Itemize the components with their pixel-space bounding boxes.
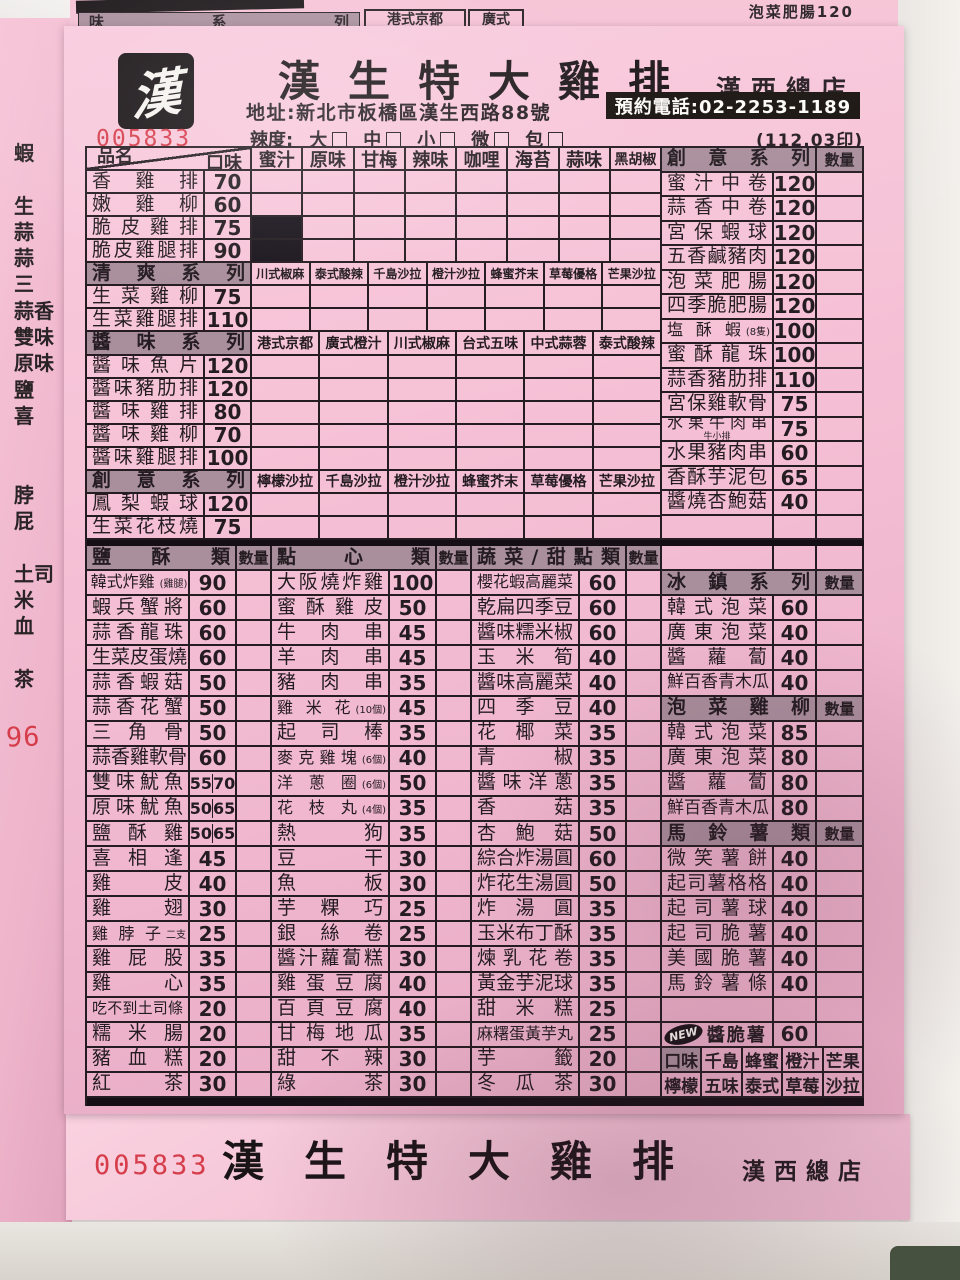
table-row: 櫻花蝦高麗菜60	[472, 571, 662, 596]
item-name-cell: 芋籤	[472, 1048, 580, 1073]
flavor-select-cell[interactable]	[252, 356, 320, 379]
flavor-select-cell[interactable]	[508, 240, 559, 263]
item-price-cell: 50	[580, 822, 627, 847]
item-name: 鹽酥雞	[87, 824, 188, 844]
quantity-input-cell[interactable]	[237, 621, 272, 646]
flavor-select-cell[interactable]	[252, 425, 320, 448]
spice-checkbox[interactable]	[386, 132, 401, 147]
quantity-input-cell[interactable]	[237, 772, 272, 797]
item-price-cell: 60	[580, 596, 627, 621]
flavor-select-cell[interactable]	[428, 309, 487, 332]
quantity-input-cell[interactable]	[817, 671, 864, 696]
quantity-input-cell[interactable]	[237, 872, 272, 897]
flavor-select-cell[interactable]	[560, 171, 611, 194]
quantity-input-cell[interactable]	[237, 646, 272, 671]
item-name-cell: 牛肉串	[272, 621, 390, 646]
quantity-input-cell[interactable]	[817, 271, 864, 296]
quantity-input-cell[interactable]	[627, 922, 662, 947]
quantity-input-cell[interactable]	[437, 722, 472, 747]
item-name: 玉米筍	[472, 648, 578, 668]
quantity-input-cell[interactable]	[237, 1023, 272, 1048]
flavor-select-cell[interactable]	[457, 379, 525, 402]
flavor-select-cell[interactable]	[611, 171, 662, 194]
item-price-cell: 60	[774, 442, 817, 467]
flavor-select-cell[interactable]	[525, 425, 593, 448]
flavor-select-cell[interactable]	[457, 194, 508, 217]
table-row: 水果牛肉串牛小排75	[662, 418, 864, 443]
flavor-select-cell[interactable]	[252, 517, 320, 540]
item-name-cell: 香菇	[472, 797, 580, 822]
flavor-select-cell[interactable]	[457, 217, 508, 240]
item-name: 醬味豬肋排	[87, 379, 203, 399]
quantity-input-cell[interactable]	[237, 822, 272, 847]
item-price-cell: 40	[774, 621, 817, 646]
flavor-select-cell[interactable]	[320, 448, 388, 471]
table-row: 醬燒杏鮑菇40	[662, 491, 864, 516]
quantity-input-cell[interactable]	[817, 621, 864, 646]
section-header: 鹽酥類	[87, 546, 237, 571]
item-price-cell: 80	[205, 402, 252, 425]
flavor-select-cell[interactable]	[525, 517, 593, 540]
flavor-select-cell[interactable]	[320, 517, 388, 540]
table-row: 冬瓜茶30	[472, 1073, 662, 1098]
item-price-cell: 35	[390, 1023, 437, 1048]
section-header: 蔬菜/甜點類	[472, 546, 627, 571]
flavor-select-cell[interactable]	[611, 194, 662, 217]
quantity-input-cell[interactable]	[237, 596, 272, 621]
table-row: 馬鈴薯類數量	[662, 822, 864, 847]
item-price-cell: 40	[390, 973, 437, 998]
flavor-select-cell[interactable]	[457, 448, 525, 471]
item-name: 羊肉串	[272, 648, 388, 668]
item-price-cell: 30	[390, 1048, 437, 1073]
quantity-input-cell[interactable]	[437, 671, 472, 696]
quantity-input-cell[interactable]	[817, 973, 864, 998]
table-row: 鹽酥雞5065	[87, 822, 272, 847]
flavor-select-cell[interactable]	[486, 286, 545, 309]
flavor-option: 檸檬	[662, 1073, 702, 1098]
item-name-cell: 雞心	[87, 973, 190, 998]
item-name-cell: 蒜香花蟹	[87, 697, 190, 722]
quantity-input-cell[interactable]	[817, 747, 864, 772]
flavor-select-cell[interactable]	[320, 425, 388, 448]
flavor-select-cell[interactable]	[560, 194, 611, 217]
quantity-input-cell[interactable]	[437, 1073, 472, 1098]
empty-cell	[817, 998, 864, 1023]
item-name: 雞米花	[272, 700, 355, 717]
quantity-input-cell[interactable]	[627, 596, 662, 621]
stacked-sheet-text-column: 蝦生蒜蒜三蒜香雙味原味鹽喜脖屁土司米血茶	[14, 140, 66, 692]
item-price-cell: 120	[205, 356, 252, 379]
item-name: 花枝丸	[272, 800, 362, 817]
quantity-input-cell[interactable]	[627, 847, 662, 872]
flavor-select-cell[interactable]	[545, 286, 604, 309]
item-name-cell: 蜜酥雞皮	[272, 596, 390, 621]
flavor-select-cell[interactable]	[457, 402, 525, 425]
item-name-with-sub: 水果牛肉串牛小排	[662, 418, 772, 443]
flavor-select-cell[interactable]	[252, 194, 303, 217]
table-row: 黃金芋泥球35	[472, 973, 662, 998]
quantity-input-cell[interactable]	[817, 393, 864, 418]
quantity-input-cell[interactable]	[817, 646, 864, 671]
item-name: 脆皮雞腿排	[87, 241, 203, 261]
flavor-select-cell[interactable]	[594, 448, 662, 471]
flavor-select-cell[interactable]	[603, 286, 662, 309]
quantity-input-cell[interactable]	[437, 1023, 472, 1048]
flavor-column-header: 廣式橙汁	[320, 332, 388, 355]
quantity-input-cell[interactable]	[627, 722, 662, 747]
item-name-cell: 雞翅	[87, 897, 190, 922]
quantity-input-cell[interactable]	[437, 571, 472, 596]
quantity-input-cell[interactable]	[437, 998, 472, 1023]
section-title: 清爽系列	[87, 264, 250, 284]
item-name-cell: 綜合炸湯圓	[472, 847, 580, 872]
item-name: 煉乳花卷	[472, 949, 578, 969]
quantity-input-cell[interactable]	[437, 797, 472, 822]
item-price-small: 50	[190, 824, 212, 843]
flavor-select-cell[interactable]	[303, 217, 354, 240]
quantity-input-cell[interactable]	[627, 797, 662, 822]
flavor-select-cell[interactable]	[406, 217, 457, 240]
flavor-select-cell[interactable]	[406, 171, 457, 194]
quantity-input-cell[interactable]	[437, 596, 472, 621]
quantity-input-cell[interactable]	[437, 621, 472, 646]
quantity-input-cell[interactable]	[627, 571, 662, 596]
flavor-select-cell[interactable]	[252, 309, 311, 332]
flavor-select-cell[interactable]	[508, 217, 559, 240]
quantity-input-cell[interactable]	[437, 772, 472, 797]
creative-series-panel: 創意系列數量蜜汁中卷120蒜香中卷120宮保蝦球120五香鹹豬肉120泡菜肥腸1…	[662, 148, 864, 540]
flavor-select-cell[interactable]	[545, 309, 604, 332]
item-name: 甜不辣	[272, 1049, 388, 1069]
quantity-column-header: 數量	[817, 148, 864, 173]
quantity-input-cell[interactable]	[437, 747, 472, 772]
flavor-select-cell[interactable]	[320, 379, 388, 402]
item-name-cell: 吃不到土司條	[87, 998, 190, 1023]
flavor-select-cell[interactable]	[311, 286, 370, 309]
quantity-input-cell[interactable]	[627, 822, 662, 847]
item-name-cell: 鹽酥雞	[87, 822, 190, 847]
flavor-select-cell[interactable]	[303, 240, 354, 263]
item-name-cell: 韓式泡菜	[662, 722, 774, 747]
flavor-select-cell[interactable]	[369, 286, 428, 309]
quantity-input-cell[interactable]	[237, 922, 272, 947]
quantity-column-header: 數量	[437, 546, 472, 571]
quantity-input-cell[interactable]	[237, 973, 272, 998]
flavor-select-cell[interactable]	[252, 286, 311, 309]
quantity-input-cell[interactable]	[817, 246, 864, 271]
quantity-input-cell[interactable]	[627, 621, 662, 646]
flavor-select-cell[interactable]	[252, 494, 320, 517]
item-price-cell: 35	[190, 973, 237, 998]
item-name-cell: 生菜花枝燒	[87, 517, 205, 540]
quantity-input-cell[interactable]	[627, 998, 662, 1023]
flavor-select-cell[interactable]	[311, 309, 370, 332]
flavor-select-cell[interactable]	[508, 194, 559, 217]
flavor-select-cell[interactable]	[406, 240, 457, 263]
stacked-sheet-text-fragment: 原味	[14, 350, 66, 376]
quantity-input-cell[interactable]	[437, 646, 472, 671]
quantity-input-cell[interactable]	[817, 897, 864, 922]
flavor-column-header: 芒果沙拉	[603, 263, 662, 286]
spice-checkbox[interactable]	[440, 132, 455, 147]
table-row: 雞米花(10個)45	[272, 697, 472, 722]
table-row: 醬味雞排80	[87, 402, 662, 425]
flavor-option: 沙拉	[824, 1073, 864, 1098]
quantity-input-cell[interactable]	[817, 596, 864, 621]
table-row: 玉米筍40	[472, 646, 662, 671]
flavor-select-cell[interactable]	[525, 402, 593, 425]
flavor-select-cell[interactable]	[389, 425, 457, 448]
item-name: 醬味雞柳	[87, 425, 203, 445]
quantity-input-cell[interactable]	[817, 491, 864, 516]
item-name-cell: 醬味雞柳	[87, 425, 205, 448]
spice-checkbox[interactable]	[494, 132, 509, 147]
flavor-select-cell[interactable]	[369, 309, 428, 332]
quantity-input-cell[interactable]	[817, 847, 864, 872]
flavor-select-cell[interactable]	[320, 356, 388, 379]
flavor-select-cell[interactable]	[457, 494, 525, 517]
item-name-cell: 炸湯圓	[472, 897, 580, 922]
quantity-input-cell[interactable]	[817, 772, 864, 797]
item-name-cell: 韓式泡菜	[662, 596, 774, 621]
quantity-input-cell[interactable]	[237, 998, 272, 1023]
item-name: 雞脖子	[87, 926, 166, 943]
flavor-select-cell[interactable]	[525, 448, 593, 471]
quantity-input-cell[interactable]	[817, 369, 864, 394]
quantity-input-cell[interactable]	[437, 847, 472, 872]
quantity-input-cell[interactable]	[817, 442, 864, 467]
flavor-select-cell[interactable]	[457, 356, 525, 379]
flavor-column-header: 千島沙拉	[320, 471, 388, 494]
table-row: 清爽系列川式椒麻泰式酸辣千島沙拉橙汁沙拉蜂蜜芥末草莓優格芒果沙拉	[87, 263, 662, 286]
item-name: 醬味糯米椒	[472, 623, 578, 643]
flavor-select-cell[interactable]	[303, 194, 354, 217]
quantity-input-cell[interactable]	[627, 747, 662, 772]
item-price-cell: 35	[580, 947, 627, 972]
flavor-select-cell[interactable]	[389, 356, 457, 379]
quantity-input-cell[interactable]	[237, 697, 272, 722]
item-note: (雞腿)	[160, 575, 188, 590]
quantity-input-cell[interactable]	[627, 772, 662, 797]
quantity-input-cell[interactable]	[627, 671, 662, 696]
quantity-input-cell[interactable]	[237, 671, 272, 696]
quantity-input-cell[interactable]	[237, 747, 272, 772]
flavor-select-cell[interactable]	[560, 240, 611, 263]
quantity-input-cell[interactable]	[627, 897, 662, 922]
flavor-select-cell[interactable]	[303, 171, 354, 194]
quantity-input-cell[interactable]	[437, 872, 472, 897]
name-flavor-corner-cell: 口味品名	[87, 148, 252, 171]
flavor-select-cell[interactable]	[508, 171, 559, 194]
flavor-select-cell[interactable]	[611, 217, 662, 240]
flavor-select-cell[interactable]	[594, 425, 662, 448]
item-note: (4個)	[362, 801, 386, 816]
quantity-input-cell[interactable]	[627, 1073, 662, 1098]
table-row: 煉乳花卷35	[472, 947, 662, 972]
stacked-sheet-text-fragment: 雙味	[14, 324, 66, 350]
spice-checkbox[interactable]	[332, 132, 347, 147]
quantity-input-cell[interactable]	[437, 822, 472, 847]
flavor-select-cell[interactable]	[457, 425, 525, 448]
item-name: 醬蘿蔔	[662, 773, 772, 793]
flavor-select-cell[interactable]	[457, 517, 525, 540]
item-price-cell: 60	[580, 621, 627, 646]
stacked-sheet-serial-fragment: 96	[5, 721, 41, 753]
item-name: 百頁豆腐	[272, 999, 388, 1019]
quantity-input-cell[interactable]	[817, 1023, 864, 1048]
flavor-select-cell[interactable]	[603, 309, 662, 332]
item-name: 雙味魷魚	[87, 773, 188, 793]
quantity-input-cell[interactable]	[817, 344, 864, 369]
quantity-input-cell[interactable]	[817, 173, 864, 198]
flavor-select-cell[interactable]	[389, 517, 457, 540]
flavor-select-cell[interactable]	[486, 309, 545, 332]
table-row: 雞屁股35	[87, 947, 272, 972]
table-row: 馬鈴薯條40	[662, 973, 864, 998]
quantity-input-cell[interactable]	[237, 797, 272, 822]
item-name: 黃金芋泥球	[472, 974, 578, 994]
flavor-select-cell[interactable]	[594, 379, 662, 402]
quantity-input-cell[interactable]	[437, 1048, 472, 1073]
flavor-select-cell[interactable]	[320, 494, 388, 517]
table-row: 蒜香蝦菇50	[87, 671, 272, 696]
footer-serial-number: 005833	[94, 1150, 210, 1181]
quantity-input-cell[interactable]	[817, 922, 864, 947]
item-price-cell: 30	[190, 1073, 237, 1098]
quantity-input-cell[interactable]	[817, 797, 864, 822]
quantity-input-cell[interactable]	[437, 947, 472, 972]
quantity-input-cell[interactable]	[627, 872, 662, 897]
flavor-select-cell[interactable]	[457, 171, 508, 194]
quantity-input-cell[interactable]	[817, 947, 864, 972]
item-note: (6個)	[362, 776, 386, 791]
item-price-cell: 20	[190, 1048, 237, 1073]
flavor-select-cell[interactable]	[355, 240, 406, 263]
quantity-input-cell[interactable]	[437, 973, 472, 998]
quantity-input-cell[interactable]	[237, 1048, 272, 1073]
flavor-column-header: 泰式酸辣	[311, 263, 370, 286]
quantity-input-cell[interactable]	[437, 697, 472, 722]
flavor-select-cell[interactable]	[560, 217, 611, 240]
quantity-input-cell[interactable]	[817, 222, 864, 247]
quantity-input-cell[interactable]	[437, 897, 472, 922]
flavor-select-cell[interactable]	[389, 494, 457, 517]
flavor-select-cell[interactable]	[252, 402, 320, 425]
item-name-cell: 蒜香中卷	[662, 197, 774, 222]
quantity-input-cell[interactable]	[627, 697, 662, 722]
flavor-select-cell[interactable]	[406, 194, 457, 217]
item-name: 生菜皮蛋燒	[87, 648, 188, 668]
flavor-select-cell[interactable]	[611, 240, 662, 263]
quantity-input-cell[interactable]	[627, 1048, 662, 1073]
flavor-select-cell[interactable]	[525, 356, 593, 379]
item-price-cell: 100	[774, 344, 817, 369]
item-price-cell: 25	[580, 1023, 627, 1048]
item-name-cell: 醬味高麗菜	[472, 671, 580, 696]
flavor-select-cell[interactable]	[594, 517, 662, 540]
flavor-select-cell[interactable]	[389, 448, 457, 471]
flavor-select-cell[interactable]	[389, 402, 457, 425]
flavor-select-cell[interactable]	[594, 494, 662, 517]
quantity-input-cell[interactable]	[237, 897, 272, 922]
quantity-input-cell[interactable]	[627, 947, 662, 972]
item-name: 杏鮑菇	[472, 824, 578, 844]
item-name: 廣東泡菜	[662, 623, 772, 643]
empty-cell	[817, 546, 864, 571]
item-name-cell: 冬瓜茶	[472, 1073, 580, 1098]
table-row: 豆干30	[272, 847, 472, 872]
item-name-cell: 芋粿巧	[272, 897, 390, 922]
table-row: 醬味糯米椒60	[472, 621, 662, 646]
item-name-cell: 蜜酥龍珠	[662, 344, 774, 369]
flavor-select-cell[interactable]	[252, 379, 320, 402]
item-name: 醬燒杏鮑菇	[662, 492, 772, 512]
quantity-input-cell[interactable]	[437, 922, 472, 947]
flavor-select-cell[interactable]	[355, 194, 406, 217]
quantity-input-cell[interactable]	[627, 973, 662, 998]
flavor-select-cell[interactable]	[525, 379, 593, 402]
flavor-column-header: 檸檬沙拉	[252, 471, 320, 494]
item-price-cell: 35	[580, 772, 627, 797]
table-row: 雞心35	[87, 973, 272, 998]
flavor-column-header: 蜂蜜芥末	[486, 263, 545, 286]
quantity-input-cell[interactable]	[237, 722, 272, 747]
flavor-select-cell[interactable]	[320, 402, 388, 425]
quantity-input-cell[interactable]	[627, 1023, 662, 1048]
quantity-input-cell[interactable]	[817, 418, 864, 443]
flavor-select-cell[interactable]	[389, 379, 457, 402]
quantity-input-cell[interactable]	[817, 467, 864, 492]
quantity-input-cell[interactable]	[237, 571, 272, 596]
quantity-input-cell[interactable]	[237, 947, 272, 972]
table-row: 醬味豬肋排120	[87, 379, 662, 402]
table-row	[662, 546, 864, 571]
item-name: 洋蔥圈	[272, 775, 362, 792]
quantity-input-cell[interactable]	[627, 646, 662, 671]
spice-checkbox[interactable]	[548, 132, 563, 147]
flavor-select-cell[interactable]	[252, 448, 320, 471]
item-name-cell: 糯米腸	[87, 1023, 190, 1048]
stacked-sheet-top: 味 系 列 港式京都 廣式 泡菜肥腸120	[70, 0, 898, 28]
flavor-header: 口味	[206, 149, 242, 171]
item-name: 脆皮雞排	[87, 218, 203, 238]
quantity-input-cell[interactable]	[817, 197, 864, 222]
stacked-sheet-text-fragment: 屁	[14, 508, 66, 534]
flavor-select-cell[interactable]	[355, 217, 406, 240]
flavor-select-cell[interactable]	[355, 171, 406, 194]
flavor-select-cell[interactable]	[428, 286, 487, 309]
empty-cell	[662, 546, 774, 571]
flavor-select-cell[interactable]	[594, 402, 662, 425]
quantity-input-cell[interactable]	[817, 872, 864, 897]
quantity-input-cell[interactable]	[817, 295, 864, 320]
item-subnote: 牛小排	[703, 433, 730, 442]
flavor-select-cell[interactable]	[252, 171, 303, 194]
quantity-input-cell[interactable]	[817, 722, 864, 747]
table-row: 嫩雞柳60	[87, 194, 662, 217]
quantity-input-cell[interactable]	[817, 516, 864, 541]
quantity-input-cell[interactable]	[237, 1073, 272, 1098]
quantity-input-cell[interactable]	[817, 320, 864, 345]
quantity-input-cell[interactable]	[237, 847, 272, 872]
phone-badge: 預約電話:02-2253-1189	[606, 92, 860, 119]
item-price-cell: 60	[580, 571, 627, 596]
flavor-select-cell[interactable]	[525, 494, 593, 517]
flavor-select-cell[interactable]	[457, 240, 508, 263]
flavor-select-cell[interactable]	[594, 356, 662, 379]
item-name-cell: 紅茶	[87, 1073, 190, 1098]
